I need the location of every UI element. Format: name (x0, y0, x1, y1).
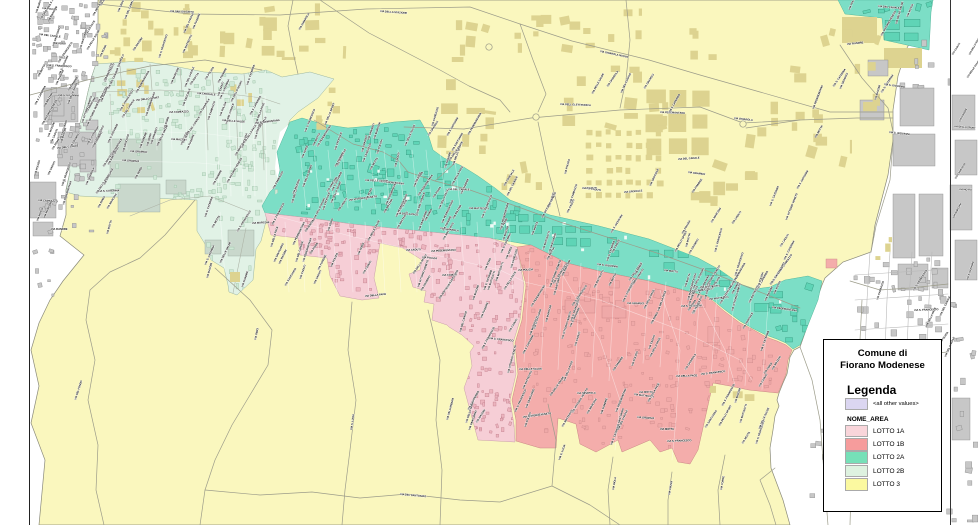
svg-text:VIA CADUTI: VIA CADUTI (582, 186, 597, 190)
svg-text:VIA DELLE SALDE: VIA DELLE SALDE (365, 178, 388, 183)
svg-text:VIA DEL CANALE: VIA DEL CANALE (448, 187, 470, 191)
svg-text:VIA POLIZIA: VIA POLIZIA (518, 267, 533, 272)
svg-text:VIA SAN GIACINTO: VIA SAN GIACINTO (170, 9, 194, 14)
svg-text:VIA CAMEAZZO: VIA CAMEAZZO (169, 109, 189, 114)
svg-text:VIA FIANDRE: VIA FIANDRE (51, 227, 68, 231)
svg-text:VIA DELLE SALDE: VIA DELLE SALDE (519, 367, 542, 371)
svg-text:VIA S. GIOVANNI: VIA S. GIOVANNI (58, 93, 79, 97)
svg-text:VIA DELLA PACE: VIA DELLA PACE (676, 373, 698, 378)
svg-text:VIA CADUTI: VIA CADUTI (406, 247, 421, 252)
svg-text:VIA MOTTA: VIA MOTTA (660, 427, 674, 431)
svg-text:VIA CADUTI: VIA CADUTI (442, 272, 457, 277)
svg-text:VIA GRAMSCI: VIA GRAMSCI (627, 301, 645, 305)
